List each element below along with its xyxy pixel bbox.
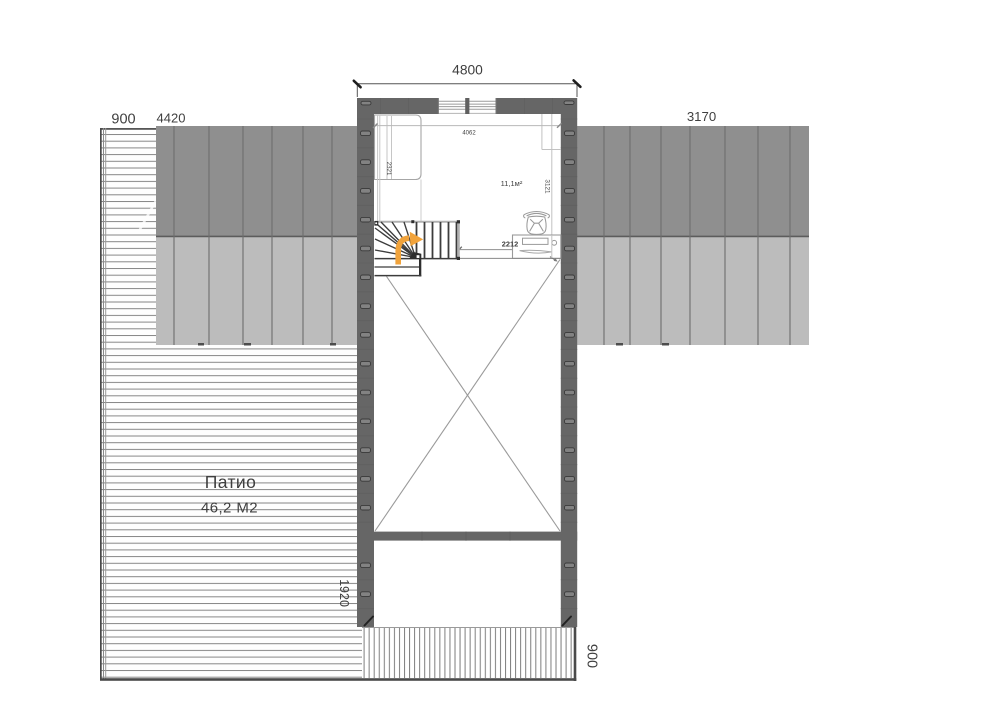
svg-text:4800: 4800 xyxy=(452,63,483,78)
svg-text:2212: 2212 xyxy=(502,239,518,248)
svg-text:900: 900 xyxy=(584,644,600,668)
svg-text:4420: 4420 xyxy=(157,111,186,126)
svg-text:11,1м²: 11,1м² xyxy=(501,179,523,188)
svg-text:3170: 3170 xyxy=(687,109,716,124)
svg-text:1920: 1920 xyxy=(337,579,351,607)
svg-text:2321: 2321 xyxy=(385,162,392,176)
svg-text:900: 900 xyxy=(111,112,135,128)
svg-text:46,2 М2: 46,2 М2 xyxy=(201,500,258,517)
svg-text:Патио: Патио xyxy=(205,472,256,492)
svg-text:4062: 4062 xyxy=(462,131,476,137)
svg-text:3121: 3121 xyxy=(544,179,551,194)
